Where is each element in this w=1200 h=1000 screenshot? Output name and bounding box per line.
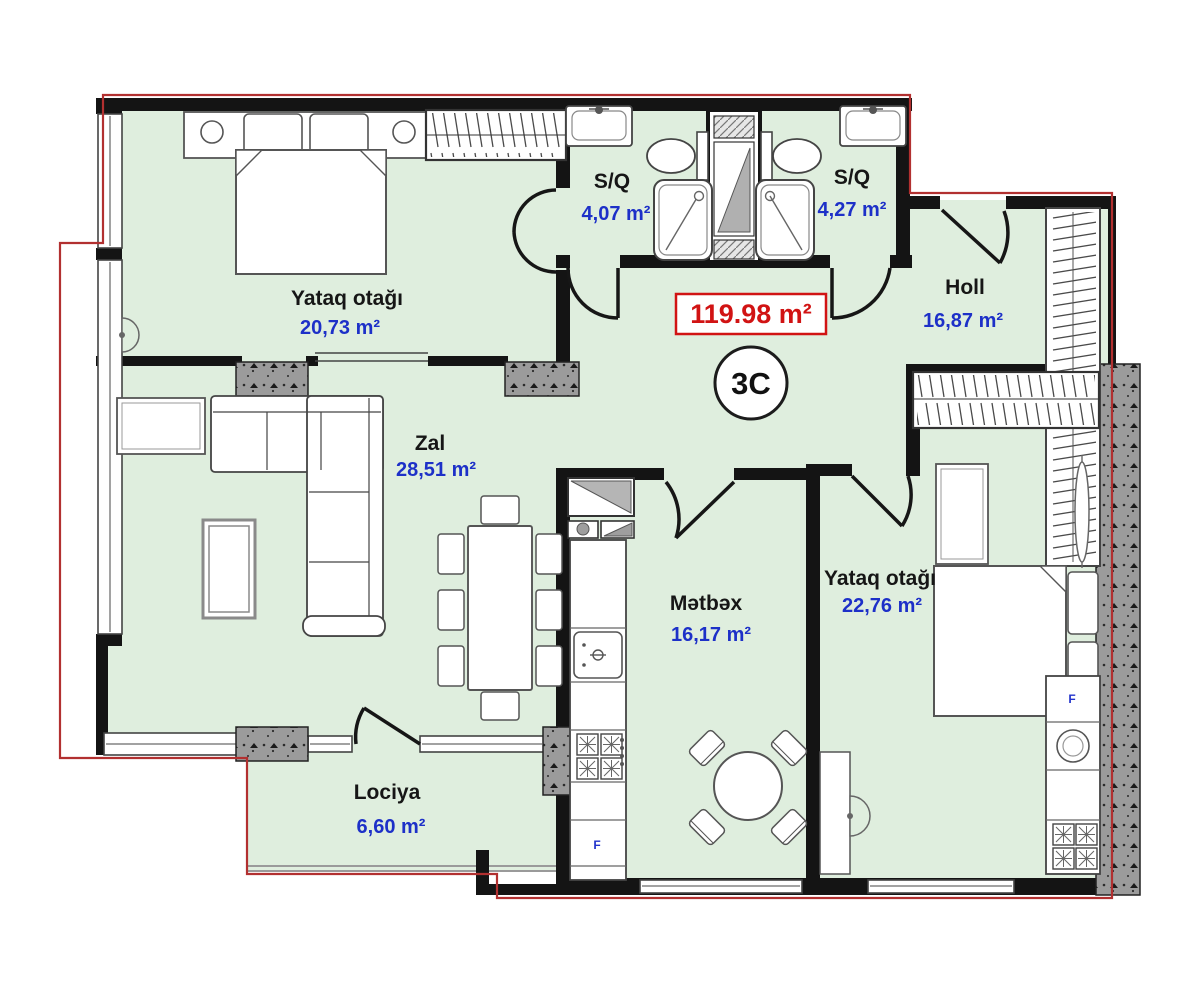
floor-plan-page: F F [0,0,1200,1000]
kitchen-sink [574,632,622,678]
washing-machine [1057,730,1089,762]
round-table [714,752,782,820]
shower [756,180,814,260]
room-name: Zal [415,432,445,455]
exterior-hatched-wall [1096,364,1140,895]
fridge-label: F [1068,692,1075,706]
double-bed [236,150,386,274]
total-area-value: 119.98 m² [690,299,812,329]
chair [536,646,562,686]
room-area: 6,60 m² [357,816,426,838]
lamp [201,121,223,143]
unit-code: 3C [731,366,771,401]
appliance-column: F [1046,676,1100,874]
floor-plan-svg: F F [0,0,1200,1000]
chair [481,496,519,524]
wardrobe [913,372,1099,428]
chair [536,534,562,574]
dining-table [468,526,532,690]
loggia-sill-left [308,736,352,752]
room-name: Mətbəx [670,592,743,615]
kitchen-vent-box [568,478,634,538]
room-area: 4,07 m² [582,203,651,225]
chair [438,534,464,574]
pillow [310,114,368,154]
window-bedroom2-bottom [868,880,1014,893]
radiator [1075,455,1089,568]
window-kitchen-bottom [640,880,802,893]
room-area: 16,17 m² [671,624,751,646]
unit-badge: 3C [715,347,787,419]
room-area: 16,87 m² [923,310,1003,332]
lamp [393,121,415,143]
fridge-label: F [593,838,600,852]
window-zal-bottom [104,733,246,755]
room-name: Yataq otağı [291,287,403,310]
pillow [1068,572,1098,634]
tv-cabinet [117,398,205,454]
total-area-badge: 119.98 m² [676,294,826,334]
column [236,727,308,761]
pillow [244,114,302,154]
chair [481,692,519,720]
room-name: S/Q [594,170,630,193]
shower [654,180,712,260]
chair [438,590,464,630]
room-area: 28,51 m² [396,459,476,481]
coffee-table [203,520,255,618]
loggia-sill-right [420,736,544,752]
chair [438,646,464,686]
room-area: 20,73 m² [300,317,380,339]
sink [566,106,632,146]
chair [536,590,562,630]
room-area: 22,76 m² [842,595,922,617]
room-name: S/Q [834,166,870,189]
column [236,362,308,396]
room-area: 4,27 m² [818,199,887,221]
vent-shaft [708,110,760,262]
kitchen-counter: F [570,540,626,880]
sink [840,106,906,146]
column [505,362,579,396]
desk [936,464,988,564]
window-bedroom1-left [98,114,122,248]
room-name: Yataq otağı [824,567,936,590]
wardrobe [426,110,566,160]
room-name: Lociya [354,781,421,804]
room-name: Holl [945,276,985,299]
